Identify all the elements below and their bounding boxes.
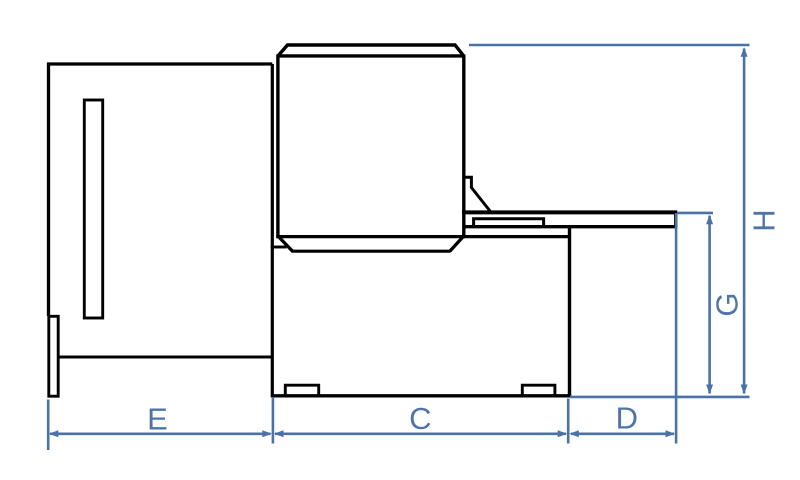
svg-text:D: D <box>616 401 638 436</box>
svg-text:C: C <box>409 401 431 436</box>
svg-text:H: H <box>746 209 781 231</box>
svg-text:E: E <box>147 401 168 436</box>
svg-text:G: G <box>709 292 744 316</box>
